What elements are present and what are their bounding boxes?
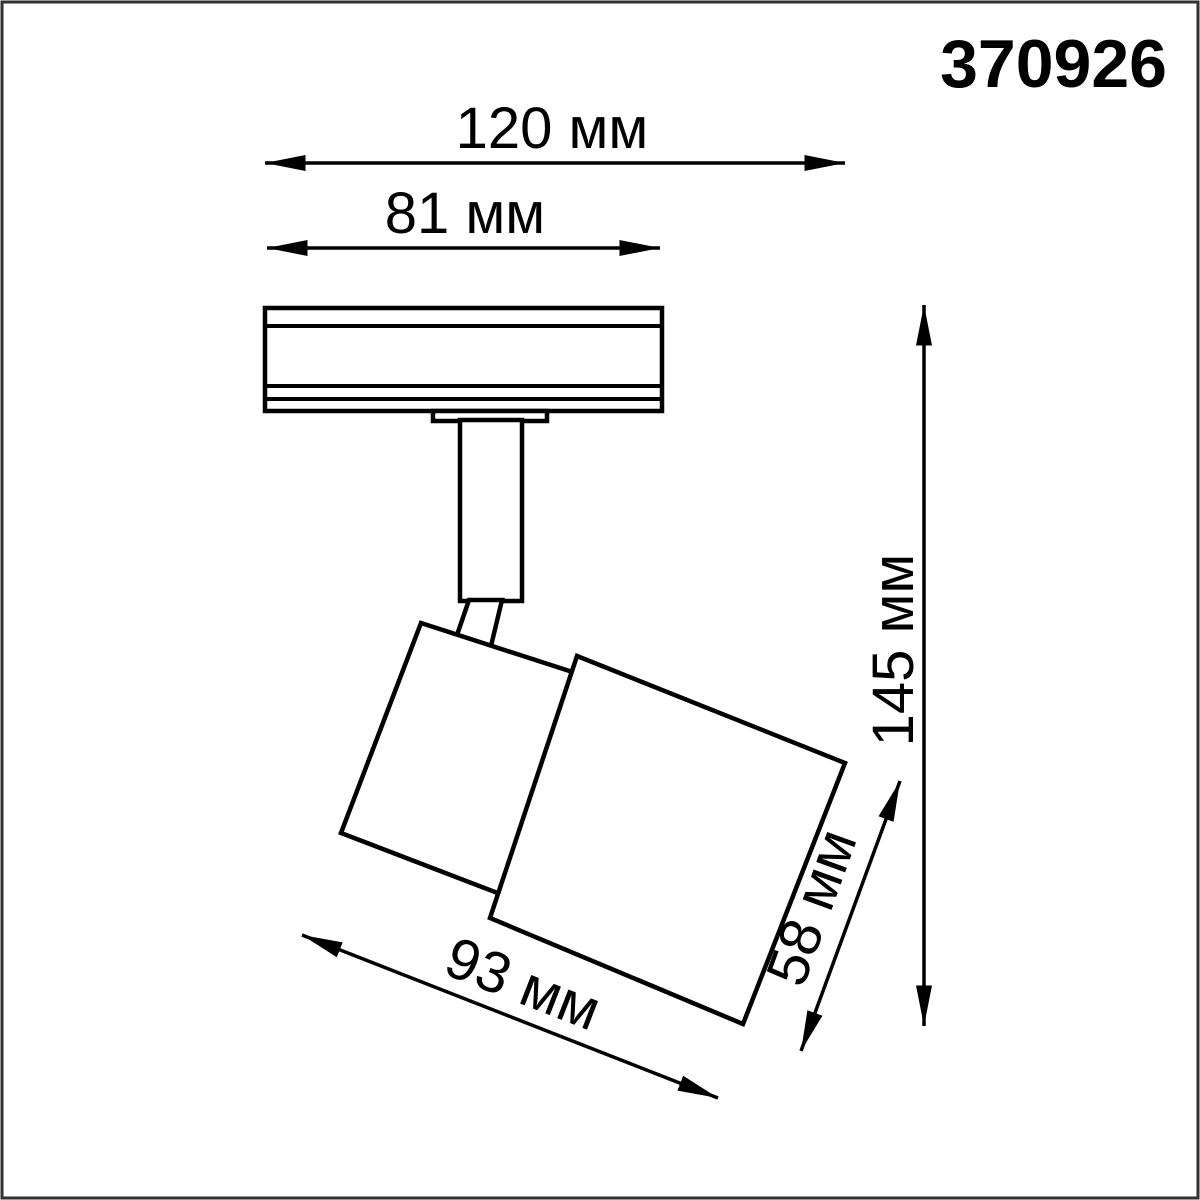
dim-track-width-label: 81 мм [385, 181, 545, 246]
drawing-page: 370926 120 мм 81 мм 145 мм [0, 0, 1200, 1200]
dim-track-width: 81 мм [267, 181, 660, 248]
page-border-frame [2, 2, 1198, 1198]
track-adapter [265, 308, 662, 421]
dim-overall-height-label: 145 мм [861, 554, 926, 747]
product-code: 370926 [940, 26, 1167, 102]
dim-overall-width: 120 мм [265, 96, 845, 163]
dim-overall-height: 145 мм [861, 305, 926, 1026]
stem [460, 420, 522, 601]
dimension-drawing: 370926 120 мм 81 мм 145 мм [0, 0, 1200, 1200]
track-adapter-body [265, 308, 662, 411]
dim-overall-width-label: 120 мм [456, 96, 649, 161]
